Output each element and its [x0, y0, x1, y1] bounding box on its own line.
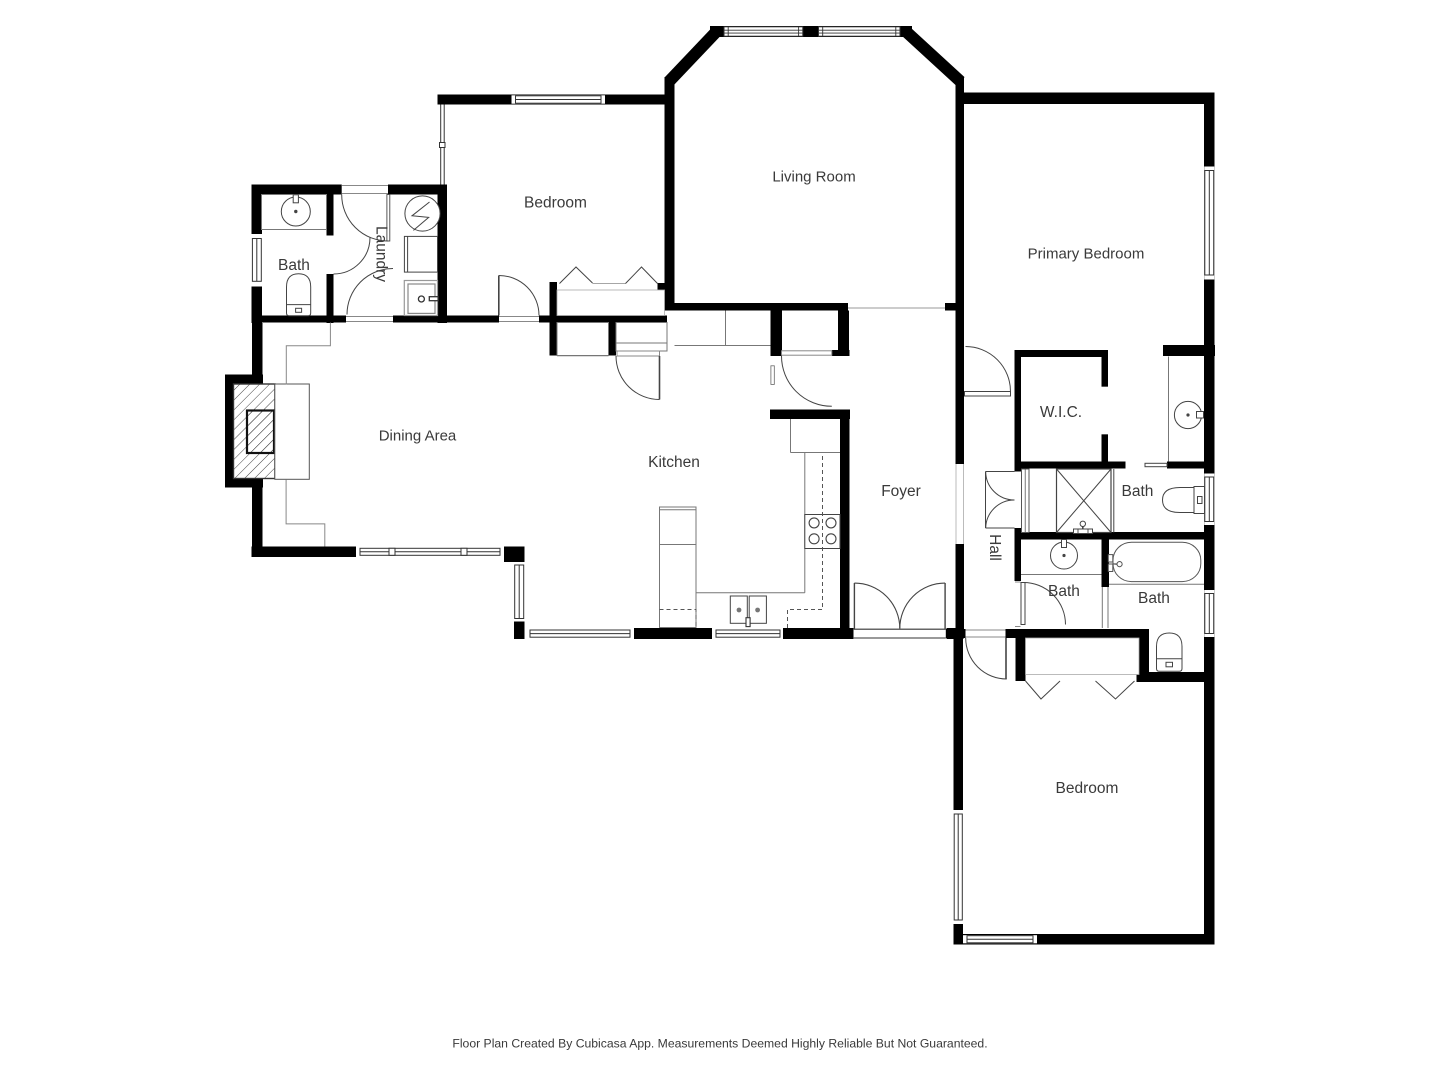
svg-text:Floor Plan Created By Cubicasa: Floor Plan Created By Cubicasa App. Meas…	[452, 1037, 987, 1051]
svg-text:Primary Bedroom: Primary Bedroom	[1028, 246, 1145, 263]
svg-text:Bath: Bath	[1138, 590, 1170, 607]
svg-text:Living Room: Living Room	[772, 169, 855, 186]
svg-text:Bath: Bath	[278, 257, 310, 274]
svg-text:Laundry: Laundry	[373, 226, 390, 282]
svg-text:Foyer: Foyer	[881, 483, 921, 500]
svg-text:Bath: Bath	[1122, 483, 1154, 500]
svg-text:Bedroom: Bedroom	[1056, 780, 1119, 797]
svg-text:Bath: Bath	[1048, 583, 1080, 600]
svg-text:Bedroom: Bedroom	[524, 195, 587, 212]
svg-text:Kitchen: Kitchen	[648, 454, 700, 471]
svg-text:W.I.C.: W.I.C.	[1040, 404, 1082, 421]
svg-text:Hall: Hall	[986, 534, 1003, 561]
svg-text:Dining Area: Dining Area	[379, 428, 457, 445]
